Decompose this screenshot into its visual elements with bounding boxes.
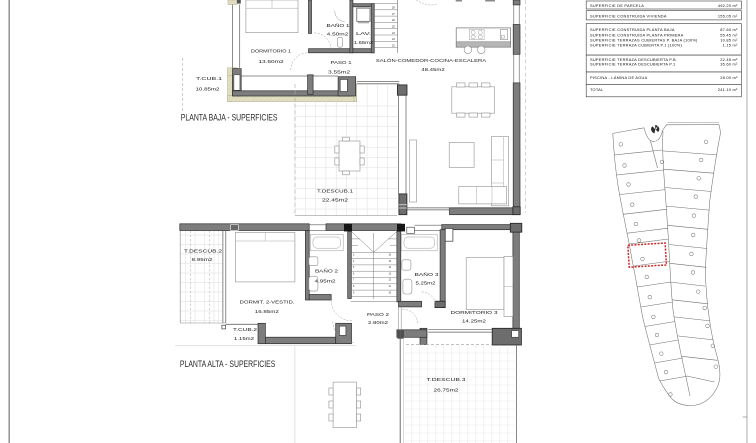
svg-text:48.45m2: 48.45m2 — [421, 67, 445, 73]
svg-text:PASO 1: PASO 1 — [331, 60, 352, 66]
svg-text:T.CUB.2: T.CUB.2 — [233, 327, 257, 333]
svg-text:5.25m2: 5.25m2 — [416, 280, 436, 286]
svg-text:28.00 m²: 28.00 m² — [720, 75, 738, 80]
svg-text:PLANTA ALTA - SUPERFICIES: PLANTA ALTA - SUPERFICIES — [180, 359, 276, 370]
svg-text:8.95m2: 8.95m2 — [192, 257, 213, 263]
svg-text:DORMITORIO 1: DORMITORIO 1 — [251, 48, 292, 54]
svg-text:SUPERFICIE CONSTRUIDA VIVIENDA: SUPERFICIE CONSTRUIDA VIVIENDA — [590, 14, 667, 19]
svg-text:35.60 m²: 35.60 m² — [720, 61, 738, 66]
svg-text:PISCINA - LÁMINA DE AGUA: PISCINA - LÁMINA DE AGUA — [590, 75, 648, 80]
svg-text:4.95m2: 4.95m2 — [315, 278, 336, 284]
svg-text:22.45m2: 22.45m2 — [322, 198, 348, 204]
svg-text:492.20 m²: 492.20 m² — [718, 3, 738, 8]
svg-text:SUPERFICIE TERRAZAS CUBIERTAS: SUPERFICIE TERRAZAS CUBIERTAS P. BAJA (1… — [590, 37, 698, 42]
svg-text:SUPERFICIE TERRAZA DESCUBIERTA: SUPERFICIE TERRAZA DESCUBIERTA P.1 — [590, 61, 675, 66]
svg-text:DORMITORIO 3: DORMITORIO 3 — [451, 310, 498, 316]
svg-text:13.50m2: 13.50m2 — [258, 59, 284, 65]
svg-text:1.65m2: 1.65m2 — [354, 40, 374, 46]
svg-text:26.75m2: 26.75m2 — [434, 387, 459, 393]
svg-text:10.85 m²: 10.85 m² — [720, 37, 738, 42]
svg-text:3.55m2: 3.55m2 — [328, 69, 350, 75]
svg-text:2.80m2: 2.80m2 — [368, 320, 388, 326]
svg-text:1.15m2: 1.15m2 — [234, 336, 254, 342]
svg-text:155.05 m²: 155.05 m² — [718, 14, 738, 19]
svg-text:16.85m2: 16.85m2 — [255, 309, 279, 315]
svg-text:241.10 m²: 241.10 m² — [718, 87, 738, 92]
svg-text:4.50m2: 4.50m2 — [327, 31, 349, 37]
svg-text:SUPERFICIE CONSTRUIDA PLANTA P: SUPERFICIE CONSTRUIDA PLANTA PRIMERA — [590, 32, 684, 37]
svg-text:SUPERFICIE DE PARCELA: SUPERFICIE DE PARCELA — [590, 3, 644, 8]
svg-text:PLANTA BAJA - SUPERFICIES: PLANTA BAJA - SUPERFICIES — [181, 113, 278, 124]
svg-text:T.DESCUB.3: T.DESCUB.3 — [427, 377, 466, 383]
svg-text:SUPERFICIE CONSTRUIDA PLANTA B: SUPERFICIE CONSTRUIDA PLANTA BAJA — [590, 27, 675, 32]
svg-text:14.25m2: 14.25m2 — [462, 318, 486, 324]
svg-text:DORMIT. 2-VESTID.: DORMIT. 2-VESTID. — [240, 299, 295, 305]
svg-text:87.60 m²: 87.60 m² — [720, 27, 738, 32]
svg-text:55.45 m²: 55.45 m² — [720, 32, 738, 37]
svg-text:TOTAL: TOTAL — [590, 87, 604, 92]
svg-text:T.DESCUB.2: T.DESCUB.2 — [184, 248, 222, 254]
svg-text:1.15 m²: 1.15 m² — [723, 43, 738, 48]
svg-text:PASO 2: PASO 2 — [367, 312, 389, 318]
svg-text:T.DESCUB.1: T.DESCUB.1 — [317, 188, 353, 194]
svg-text:SUPERFICIE TERRAZA CUBIERTA P.: SUPERFICIE TERRAZA CUBIERTA P.1 (100%) — [590, 43, 682, 48]
svg-text:10.85m2: 10.85m2 — [196, 86, 220, 92]
svg-text:LAV.: LAV. — [356, 31, 371, 37]
svg-text:T.CUB.1: T.CUB.1 — [196, 76, 222, 82]
